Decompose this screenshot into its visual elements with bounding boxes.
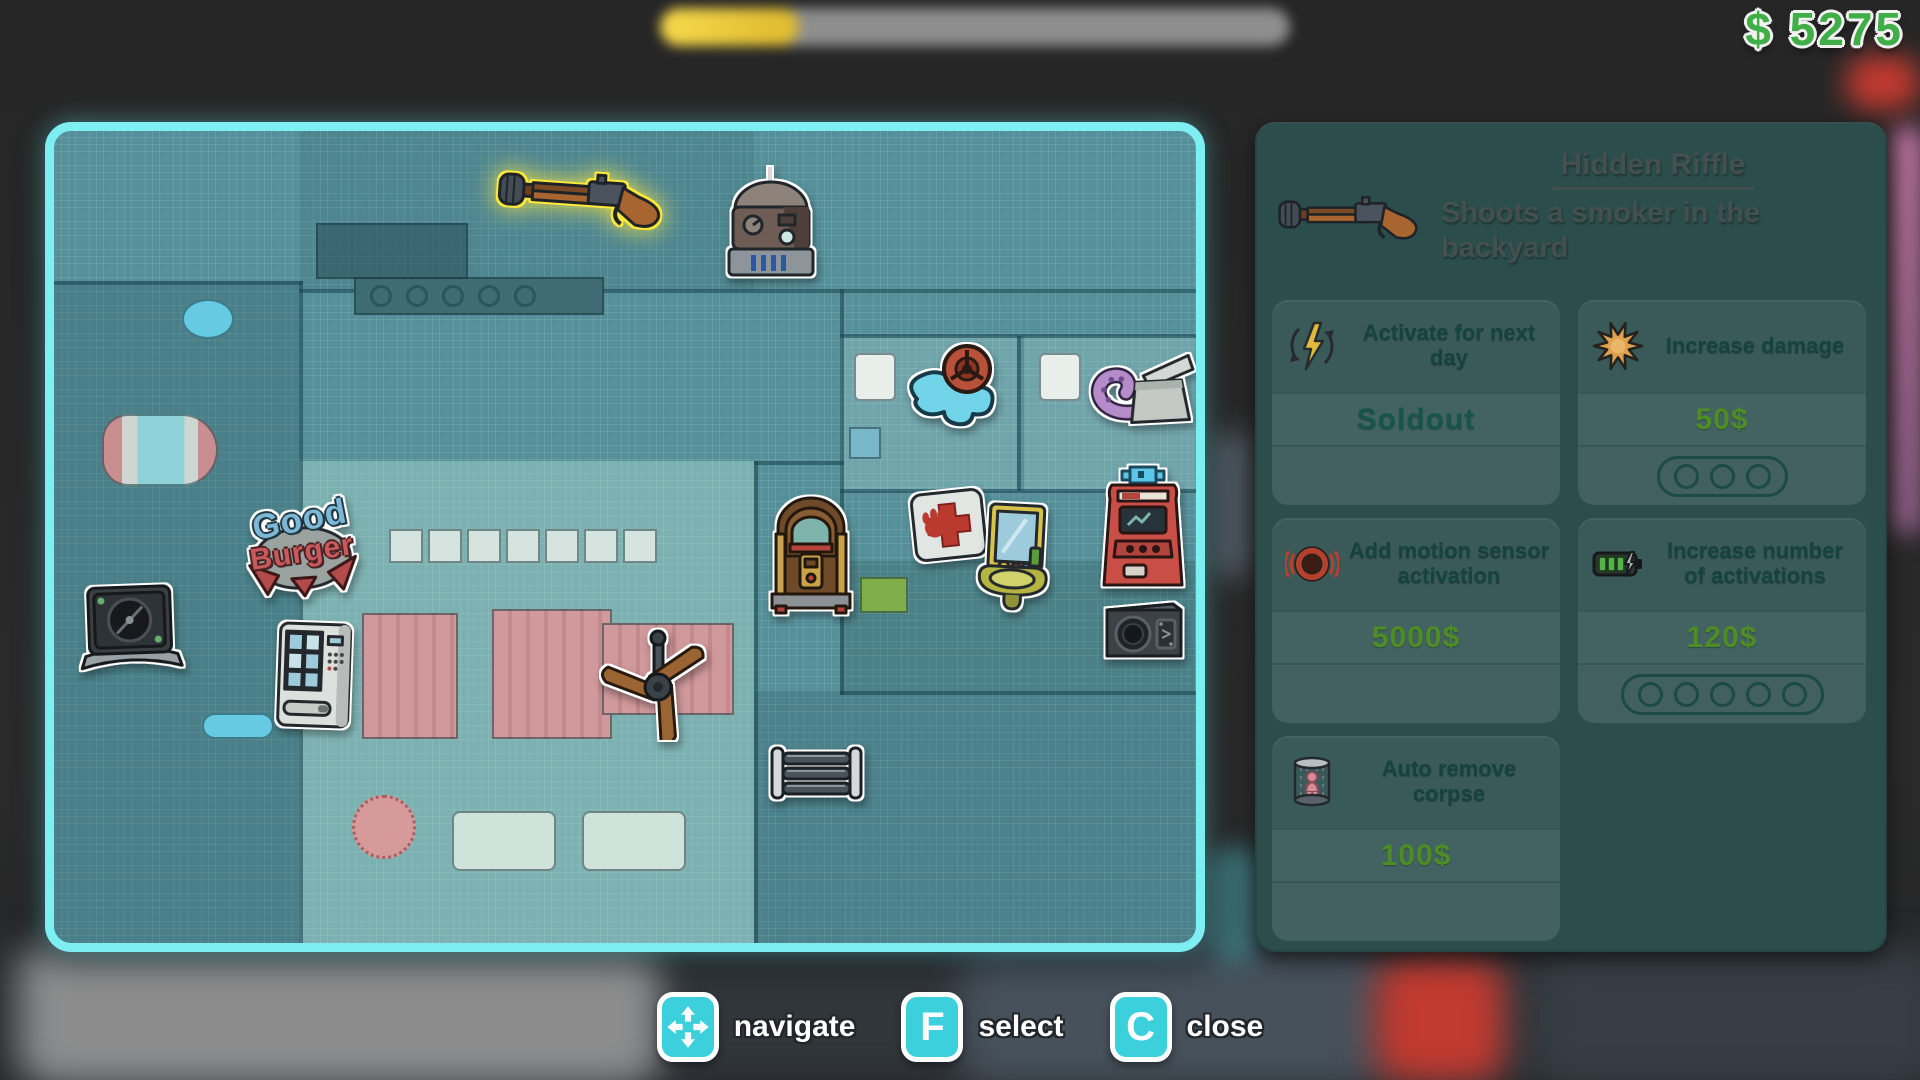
room-outside-right [754,691,1198,945]
kitchen-counter [584,529,618,563]
money-pile [860,577,908,613]
parked-car [102,414,218,486]
dpad-key[interactable] [657,992,719,1062]
control-select: F select [901,992,1063,1062]
dpad-arrows-icon [665,1004,711,1050]
money-counter: $ 5275 [1745,2,1904,56]
vending-machine-icon [269,619,358,737]
kitchen-counter [545,529,579,563]
puddle [182,299,234,339]
robot-icon [723,165,818,280]
upgrade-label: Activate for next day [1348,321,1550,370]
rifle-icon [1277,148,1429,266]
map-item-arcade-machine[interactable] [1098,465,1188,605]
acid-shower-icon [1282,755,1342,809]
kitchen-counter [428,529,462,563]
map-item-good-burger-logo[interactable]: Good Burger [224,495,381,610]
control-navigate: navigate [657,992,856,1062]
map-item-speaker-box[interactable] [1099,596,1189,669]
upgrade-progress-pips [1657,456,1788,497]
toilet [1039,353,1081,401]
map-item-hidden-riffle[interactable] [493,157,668,249]
upgrade-label: Increase number of activations [1654,539,1856,588]
arcade-machine-icon [1098,465,1188,600]
item-description: Shoots a smoker in the backyard [1441,196,1865,266]
sofa [452,811,556,871]
control-hints-bar: navigate F select C close [0,992,1920,1062]
day-progress-fill [660,8,799,46]
day-progress-bar [660,8,1290,46]
key-f[interactable]: F [901,992,963,1062]
battery-icon [1588,537,1648,591]
ceiling-fan-icon [596,625,721,740]
upgrade-card-auto-remove-corpse[interactable]: Auto remove corpse 100$ [1272,736,1560,941]
safe-icon [77,577,185,681]
restaurant-floorplan: Good Burger [54,131,1196,943]
map-item-radiator[interactable] [769,743,864,808]
kitchen-counter [623,529,657,563]
map-item-ceiling-fan[interactable] [596,625,721,745]
sofa [582,811,686,871]
kitchen-counter [467,529,501,563]
key-c[interactable]: C [1110,992,1172,1062]
rifle-icon [494,157,669,244]
sink-mirror-icon [969,501,1060,620]
speaker-box-icon [1099,596,1189,664]
blurred-pink-strip [1893,125,1920,535]
upgrade-card-activations[interactable]: Increase number of activations 120$ [1578,518,1866,723]
round-rug [352,795,416,859]
puddle [202,713,274,739]
upgrade-price: 50$ [1578,392,1866,447]
map-item-jukebox[interactable] [766,486,856,621]
restaurant-map-panel[interactable]: Good Burger [45,122,1205,952]
upgrade-cards: Activate for next day Soldout Increase d… [1272,300,1866,941]
octopus-box-icon [1084,343,1198,434]
map-item-water-puddle-valve[interactable] [895,341,1010,451]
map-item-octopus-box[interactable] [1084,343,1199,439]
upgrade-card-motion-sensor[interactable]: Add motion sensor activation 5000$ [1272,518,1560,723]
upgrade-card-activate[interactable]: Activate for next day Soldout [1272,300,1560,505]
map-item-robot[interactable] [723,165,818,285]
upgrade-label: Auto remove corpse [1348,757,1550,806]
kitchen-counter [389,529,423,563]
control-label: select [978,1010,1063,1044]
radiator-icon [769,743,864,803]
map-item-sink-mirror[interactable] [969,501,1060,625]
puddle-valve-icon [895,341,1010,446]
upgrade-card-increase-damage[interactable]: Increase damage 50$ [1578,300,1866,505]
storage-table [316,223,468,279]
upgrade-label: Add motion sensor activation [1348,539,1550,588]
damage-burst-icon [1588,320,1648,372]
upgrade-price: Soldout [1272,392,1560,447]
control-label: close [1187,1010,1264,1044]
map-item-vending-machine[interactable] [269,619,358,742]
upgrade-price: 100$ [1272,828,1560,883]
control-label: navigate [734,1010,856,1044]
upgrade-price: 5000$ [1272,610,1560,665]
item-detail-panel: Hidden Riffle Shoots a smoker in the bac… [1255,122,1887,952]
kitchen-counter [506,529,540,563]
toilet [854,353,896,401]
recharge-lightning-icon [1282,319,1342,373]
blurred-red-corner [1845,55,1920,110]
dining-table [492,609,612,739]
item-header: Hidden Riffle Shoots a smoker in the bac… [1277,148,1865,266]
map-item-safe[interactable] [77,577,186,686]
game-screen: $ 5275 [0,0,1920,1080]
bathroom-sink [849,427,881,459]
upgrade-price: 120$ [1578,610,1866,665]
motion-sensor-icon [1282,537,1342,591]
item-title: Hidden Riffle [1441,148,1865,190]
dining-table [362,613,458,739]
control-close: C close [1110,992,1264,1062]
stove-row [354,277,604,315]
upgrade-label: Increase damage [1654,334,1856,359]
blurred-sky-gap [1210,430,1252,580]
upgrade-progress-pips [1621,674,1824,715]
jukebox-icon [766,486,856,616]
